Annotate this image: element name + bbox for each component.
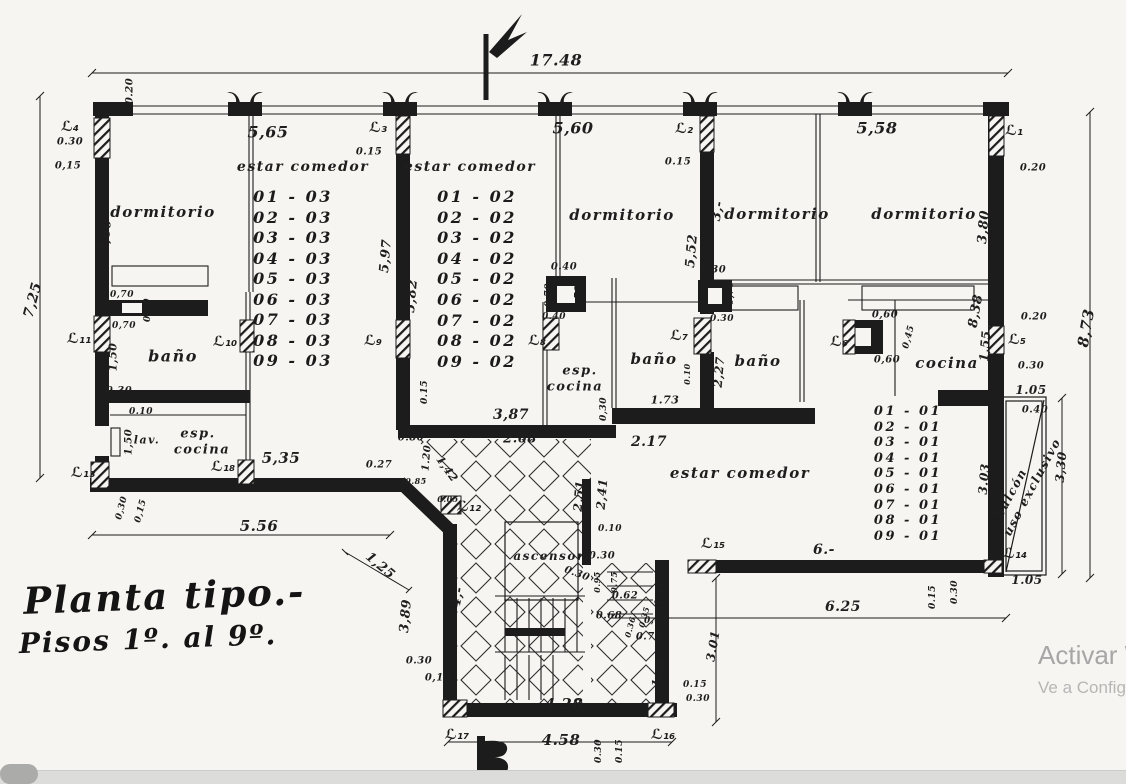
room-dormitorio-apt2: dormitorio (569, 206, 675, 224)
dim-0-60-b: 0,60 (874, 355, 900, 366)
unit-number: 07 - 03 (253, 310, 333, 331)
dim-1-81: 1,81 (649, 657, 669, 688)
room-cocina-apt1: cocina (915, 354, 979, 372)
dim-0-70-b: 0,70 (574, 285, 584, 309)
dim-4-28: 4,28 (545, 695, 584, 713)
dim-0-85: 0.85 (405, 476, 426, 486)
dim-0-30-d: 0.30 (106, 386, 132, 397)
unit-number: 05 - 03 (253, 269, 333, 290)
dim-0-30-f: 0,30 (599, 397, 609, 421)
dim-0-15-h: 0.15 (683, 680, 707, 690)
dim-0-30-e: 0,30 (114, 495, 130, 521)
dim-0-20-a: 0.20 (125, 78, 136, 104)
room-cocina-apt2: cocina (547, 380, 603, 395)
room-esp-apt3: esp. (180, 427, 215, 442)
dim-0-30-c: 0.30 (143, 298, 153, 322)
bottom-scrollbar-thumb[interactable] (0, 764, 38, 784)
room-bano-apt1-b: baño (734, 352, 781, 370)
wall-label-l9: ℒ₉ (364, 333, 382, 349)
dim-1-55: 1,55 (977, 330, 994, 362)
room-cocina-apt3: cocina (174, 443, 230, 458)
dim-3-87: 3,87 (493, 407, 529, 423)
scanned-floor-plan-page: dormitorioestar comedorestar comedordorm… (0, 0, 1126, 784)
dim-0-30-h: 0.30 (1018, 361, 1044, 372)
dim-0-30-a: 0.30 (57, 137, 83, 148)
unit-number: 05 - 01 (874, 466, 942, 482)
dim-total-width: 17.48 (530, 51, 583, 70)
unit-number: 05 - 02 (437, 269, 517, 290)
wall-label-l14: ℒ₁₄ (1003, 546, 1027, 562)
dim-0-30-g: 0.30 (710, 314, 734, 324)
dim-0-70-e: 0,70 (112, 321, 136, 331)
room-bano-apt1-a: baño (630, 350, 677, 368)
dim-0-30-k: 0.30 (563, 564, 592, 583)
wall-label-l8: ℒ₈ (528, 333, 546, 349)
dim-8-38: 8,38 (966, 293, 987, 329)
room-estar-comedor-apt1: estar comedor (670, 464, 810, 482)
unit-number: 01 - 01 (874, 404, 942, 420)
room-esp-apt2: esp. (562, 364, 597, 379)
wall-label-l1: ℒ₁ (1005, 123, 1023, 139)
dim-1-50-b: 1,50 (124, 429, 135, 455)
dim-3-30: 3,30 (1053, 451, 1070, 483)
dim-5-35: 5,35 (262, 449, 301, 467)
dim-1-42: 1,42 (433, 453, 460, 484)
dim-5-58: 5,58 (857, 119, 898, 138)
unit-list-apt2: 01 - 0202 - 0203 - 0204 - 0205 - 0206 - … (437, 187, 517, 372)
room-estar-comedor-apt3: estar comedor (237, 159, 369, 175)
wall-label-l3: ℒ₃ (369, 120, 387, 136)
dim-0-05: 0.05 (437, 494, 458, 504)
unit-number: 09 - 01 (874, 529, 942, 545)
wall-label-l18: ℒ₁₈ (211, 459, 235, 475)
dim-0-20-b: 0.20 (1020, 163, 1046, 174)
dim-2-17: 2.17 (631, 434, 667, 450)
dim-3-89: 3,89 (397, 599, 415, 634)
unit-number: 03 - 02 (437, 228, 517, 249)
dim-0-70-d: 0,70 (110, 290, 134, 300)
unit-number: 02 - 03 (253, 208, 333, 229)
dim-5-60: 5,60 (553, 119, 594, 138)
title-plan-type: Planta tipo.- (23, 569, 306, 623)
dim-1-73: 1.73 (651, 394, 680, 407)
unit-list-apt1: 01 - 0102 - 0103 - 0104 - 0105 - 0106 - … (874, 404, 942, 544)
dim-0-60-a: 0,60 (872, 310, 898, 321)
dim-5-97: 5,97 (377, 239, 395, 274)
unit-number: 03 - 03 (253, 228, 333, 249)
dim-0-80: 0.80 (398, 433, 424, 444)
dim-0-40-c: 0.40 (1022, 405, 1048, 416)
windows-activation-watermark: Activar W Ve a Config (1038, 640, 1126, 698)
unit-number: 02 - 02 (437, 208, 517, 229)
unit-number: 06 - 01 (874, 482, 942, 498)
dim-2-51: 2,51 (571, 480, 588, 512)
dim-0-30-m: 0.30 (686, 694, 710, 704)
dim-3-60: 3,60 (97, 219, 115, 254)
dim-0-15-a: 0,15 (55, 161, 81, 172)
dim-5-65: 5,65 (248, 123, 289, 142)
watermark-line1: Activar W (1038, 640, 1126, 671)
dim-1-05-a: 1.05 (1015, 383, 1046, 397)
dim-0-40-b: 0.40 (542, 312, 566, 322)
dim-0-73: 0.73 (636, 632, 662, 643)
drawing-title: Planta tipo.- Pisos 1º. al 9º. (23, 569, 308, 660)
dim-1-20: 1.20 (420, 444, 433, 471)
unit-list-apt3: 01 - 0302 - 0303 - 0304 - 0305 - 0306 - … (253, 187, 333, 372)
dim-4-58: 4.58 (542, 731, 581, 749)
dim-0-40-a: 0.40 (551, 262, 577, 273)
dim-5-52: 5,52 (683, 234, 701, 269)
dim-2-68: 2.68 (503, 432, 537, 447)
dim-3-03: 3.03 (976, 463, 993, 495)
wall-label-l15: ℒ₁₅ (701, 536, 725, 552)
unit-number: 04 - 01 (874, 451, 942, 467)
wall-label-l5: ℒ₅ (1008, 332, 1026, 348)
room-ascensor: ascensor (513, 549, 584, 563)
wall-label-l13: ℒ₁₃ (71, 465, 95, 481)
room-bano-apt3: baño (148, 347, 198, 366)
bottom-scrollbar-track[interactable] (0, 770, 1126, 784)
dim-0-15-b: 0.15 (356, 147, 382, 158)
unit-number: 01 - 03 (253, 187, 333, 208)
unit-number: 08 - 01 (874, 513, 942, 529)
dim-0-75: 0.75 (609, 571, 619, 592)
room-dormitorio-apt1-b: dormitorio (871, 205, 977, 223)
wall-label-l16: ℒ₁₆ (651, 727, 675, 743)
dim-0-20-c: 0.20 (1021, 312, 1047, 323)
dim-0-15-d: 0,15 (133, 498, 149, 524)
dim-0-10-a: 0.10 (129, 407, 153, 417)
dim-0-30-n: 0.30 (594, 739, 604, 763)
dim-1-25: 1,25 (362, 549, 397, 582)
unit-number: 07 - 01 (874, 498, 942, 514)
dim-8-73: 8,73 (1074, 307, 1098, 348)
dim-0-15-g: 0,15 (425, 673, 451, 684)
dim-0-10-c: 0.10 (598, 524, 622, 534)
unit-number: 06 - 03 (253, 290, 333, 311)
dim-0-10-b: 0.10 (682, 363, 692, 384)
dim-4-dash: 4,- (449, 586, 467, 609)
dim-7-25: 7,25 (21, 280, 46, 319)
wall-label-l10: ℒ₁₀ (213, 334, 237, 350)
dim-1-10: 1.10 (653, 579, 666, 606)
wall-label-l11: ℒ₁₁ (67, 331, 91, 347)
dim-1-05-b: 1.05 (1011, 573, 1042, 587)
dim-0-30-l: 0.30 (406, 656, 432, 667)
dim-0-95: 0.95 (592, 571, 602, 592)
room-estar-comedor-apt2: estar comedor (404, 159, 536, 175)
room-dormitorio-apt1-a: dormitorio (724, 205, 830, 223)
dim-6-25: 6.25 (825, 599, 861, 615)
room-dormitorio-apt3: dormitorio (110, 203, 216, 221)
unit-number: 01 - 02 (437, 187, 517, 208)
dim-3-80: 3,80 (975, 210, 993, 245)
unit-number: 09 - 03 (253, 351, 333, 372)
dim-0-30-b: 0.30 (700, 265, 726, 276)
dim-0-45: 0,45 (901, 324, 917, 350)
wall-label-l2: ℒ₂ (675, 121, 693, 137)
wall-label-l7: ℒ₇ (670, 328, 688, 344)
dim-0-70-a: 0,70 (544, 283, 554, 307)
dim-5-82: 5,82 (403, 279, 421, 314)
wall-label-l12: ℒ₁₂ (457, 499, 481, 515)
label-lav: lav. (134, 434, 160, 447)
dim-5-56: 5.56 (240, 517, 279, 535)
dim-1-50-a: 1,50 (107, 343, 120, 372)
dim-0-15-f: 0.15 (928, 585, 938, 609)
unit-number: 03 - 01 (874, 435, 942, 451)
dim-3-01: 3.01 (703, 629, 722, 662)
dim-0-15-e: 0.15 (420, 380, 430, 404)
dim-0-27: 0.27 (366, 460, 392, 471)
unit-number: 08 - 03 (253, 331, 333, 352)
dim-6-dash: 6.- (813, 542, 835, 558)
dim-0-15-i: 0.15 (615, 739, 625, 763)
label-layer: dormitorioestar comedorestar comedordorm… (0, 0, 1126, 784)
dim-0-68: 0.68 (596, 611, 622, 622)
dim-2-41: 2,41 (594, 478, 611, 510)
dim-0-70-c: 0,70 (726, 281, 736, 305)
dim-0-30-j: 0.30 (589, 551, 615, 562)
dim-2-27: 2,27 (711, 356, 728, 388)
unit-number: 07 - 02 (437, 311, 517, 332)
dim-0-30-i: 0.30 (950, 580, 960, 604)
unit-number: 08 - 02 (437, 331, 517, 352)
wall-label-l6: ℒ₆ (830, 334, 848, 350)
unit-number: 09 - 02 (437, 352, 517, 373)
unit-number: 02 - 01 (874, 420, 942, 436)
watermark-line2: Ve a Config (1038, 678, 1126, 698)
unit-number: 06 - 02 (437, 290, 517, 311)
wall-label-l17: ℒ₁₇ (445, 727, 469, 743)
unit-number: 04 - 02 (437, 249, 517, 270)
unit-number: 04 - 03 (253, 249, 333, 270)
wall-label-l4: ℒ₄ (61, 119, 79, 135)
dim-0-15-c: 0.15 (665, 157, 691, 168)
